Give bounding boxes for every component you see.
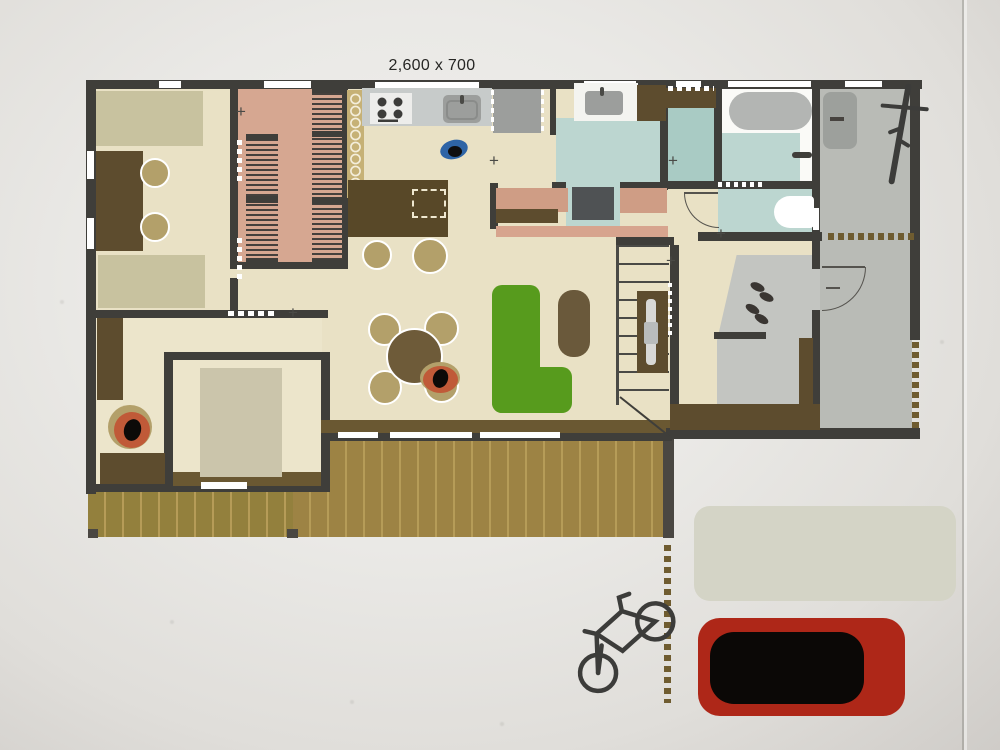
stair-break-line (619, 396, 671, 438)
window (390, 432, 472, 438)
bathtub-icon (729, 92, 812, 130)
deck-post (88, 529, 98, 538)
step-edge (714, 332, 766, 339)
bathroom-wet-area (720, 133, 800, 183)
window-marker (237, 140, 242, 182)
wall-segment (616, 237, 674, 245)
boundary-dash-column (912, 342, 919, 428)
centerline-tick: + (236, 107, 246, 117)
window (264, 81, 311, 88)
dust-speck (170, 620, 174, 624)
chair (140, 158, 170, 188)
bicycle-side-icon (538, 553, 702, 714)
wall-segment (550, 85, 556, 135)
sofa-l-shape-foot (492, 367, 572, 413)
window (728, 81, 811, 87)
rack-bar (312, 131, 343, 137)
island-dashed-fixture (412, 189, 446, 218)
ottoman (558, 290, 590, 357)
door-opening (813, 269, 820, 310)
dust-speck (350, 700, 354, 704)
cabinet (666, 88, 716, 108)
bench (620, 188, 667, 213)
wall-segment (660, 181, 718, 189)
rack-bar (312, 197, 343, 204)
rack-bar (246, 134, 278, 140)
rug (98, 255, 205, 308)
rug (96, 91, 203, 146)
stool (362, 240, 392, 270)
refrigerator (493, 89, 541, 133)
towel-bar (792, 152, 812, 158)
kitchen-sink-icon (443, 95, 481, 123)
entry-storage (670, 404, 820, 430)
wall-segment (164, 354, 173, 488)
bench (496, 226, 668, 237)
deck-right (293, 441, 673, 537)
centerline-tick: + (489, 156, 499, 166)
clothes-rack (312, 88, 343, 265)
dust-speck (500, 722, 504, 726)
window (87, 151, 94, 179)
bed (200, 368, 282, 477)
screen-edge-highlight (964, 0, 967, 750)
sliding-door-marker (228, 311, 276, 316)
cabinet-marker (541, 90, 544, 132)
fireplace (572, 187, 614, 220)
door-tick (826, 287, 840, 289)
mat-handle (830, 117, 844, 121)
deck-post (287, 529, 298, 538)
desk (96, 151, 143, 251)
chair (140, 212, 170, 242)
closet-strip (97, 318, 123, 400)
toilet-icon (774, 196, 814, 228)
bench-base (496, 209, 558, 223)
parking-pad (694, 506, 956, 601)
kitchen-sink (443, 95, 481, 123)
wall-left (86, 80, 96, 494)
deck-left (88, 492, 293, 537)
window-marker (237, 238, 242, 280)
stair-handle-grip (644, 322, 658, 344)
cabinet (637, 85, 666, 121)
shoe-cabinet (799, 338, 813, 406)
dust-speck (60, 300, 64, 304)
window (159, 81, 181, 88)
laundry-sink-icon (585, 91, 623, 115)
car-roof (710, 632, 864, 704)
wc-floor (666, 106, 718, 183)
rack-bar (246, 258, 278, 264)
centerline-tick: + (668, 156, 678, 166)
opening-marker (668, 283, 672, 335)
centerline-tick: + (666, 256, 676, 266)
stair-rail (616, 245, 619, 405)
rack-bar (312, 259, 343, 265)
stool (412, 238, 448, 274)
dimension-label: 2,600 x 700 (352, 57, 512, 75)
dust-speck (940, 340, 944, 344)
stove (370, 93, 412, 124)
stove-burners-icon (370, 93, 412, 124)
rack-bar (312, 88, 343, 93)
laundry-floor (556, 118, 668, 184)
wall-segment (86, 484, 178, 492)
vent-marker (718, 182, 766, 187)
laundry-sink (585, 91, 623, 115)
centerline-tick: + (716, 229, 726, 239)
window (201, 482, 247, 489)
wall-segment (812, 237, 820, 269)
door-marker (668, 86, 714, 91)
window (87, 218, 94, 249)
robot-vacuum-shadow (448, 146, 462, 157)
bicycle-top-icon (876, 82, 924, 186)
wall-segment (173, 486, 321, 492)
boundary-dash-row (828, 233, 914, 240)
window (338, 432, 378, 438)
rack-bar (246, 196, 278, 203)
cabinet-marker (491, 90, 494, 132)
floor-plan-canvas: 2,600 x 700 (0, 0, 1000, 750)
centerline-tick: + (288, 308, 298, 318)
window (480, 432, 560, 438)
closet-strip (100, 453, 165, 484)
wall-segment (164, 352, 330, 360)
